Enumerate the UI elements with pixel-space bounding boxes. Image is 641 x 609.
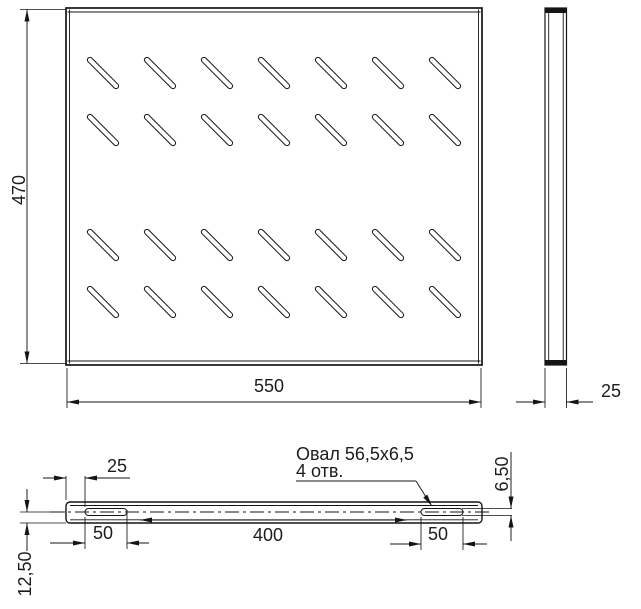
drawing-svg: 4705502525504005012,506,50Овал 56,5x6,54… <box>0 0 641 609</box>
sheet-edge <box>545 8 566 13</box>
dimension-label: 400 <box>253 525 283 545</box>
top-view <box>66 8 482 365</box>
dimension-label: 12,50 <box>15 551 35 596</box>
dimension-label: 25 <box>601 381 621 401</box>
dimension-label: 25 <box>107 456 127 476</box>
callout-line2: 4 отв. <box>296 461 343 481</box>
dimension-label: 6,50 <box>492 456 512 491</box>
technical-drawing-canvas: 4705502525504005012,506,50Овал 56,5x6,54… <box>0 0 641 609</box>
top-view-outline <box>66 8 482 365</box>
sheet-edge <box>545 360 566 365</box>
side-view <box>545 8 567 365</box>
dimension-label: 550 <box>254 376 284 396</box>
dimension-label: 470 <box>9 175 29 205</box>
dimension-label: 50 <box>93 523 113 543</box>
dimension-label: 50 <box>428 524 448 544</box>
